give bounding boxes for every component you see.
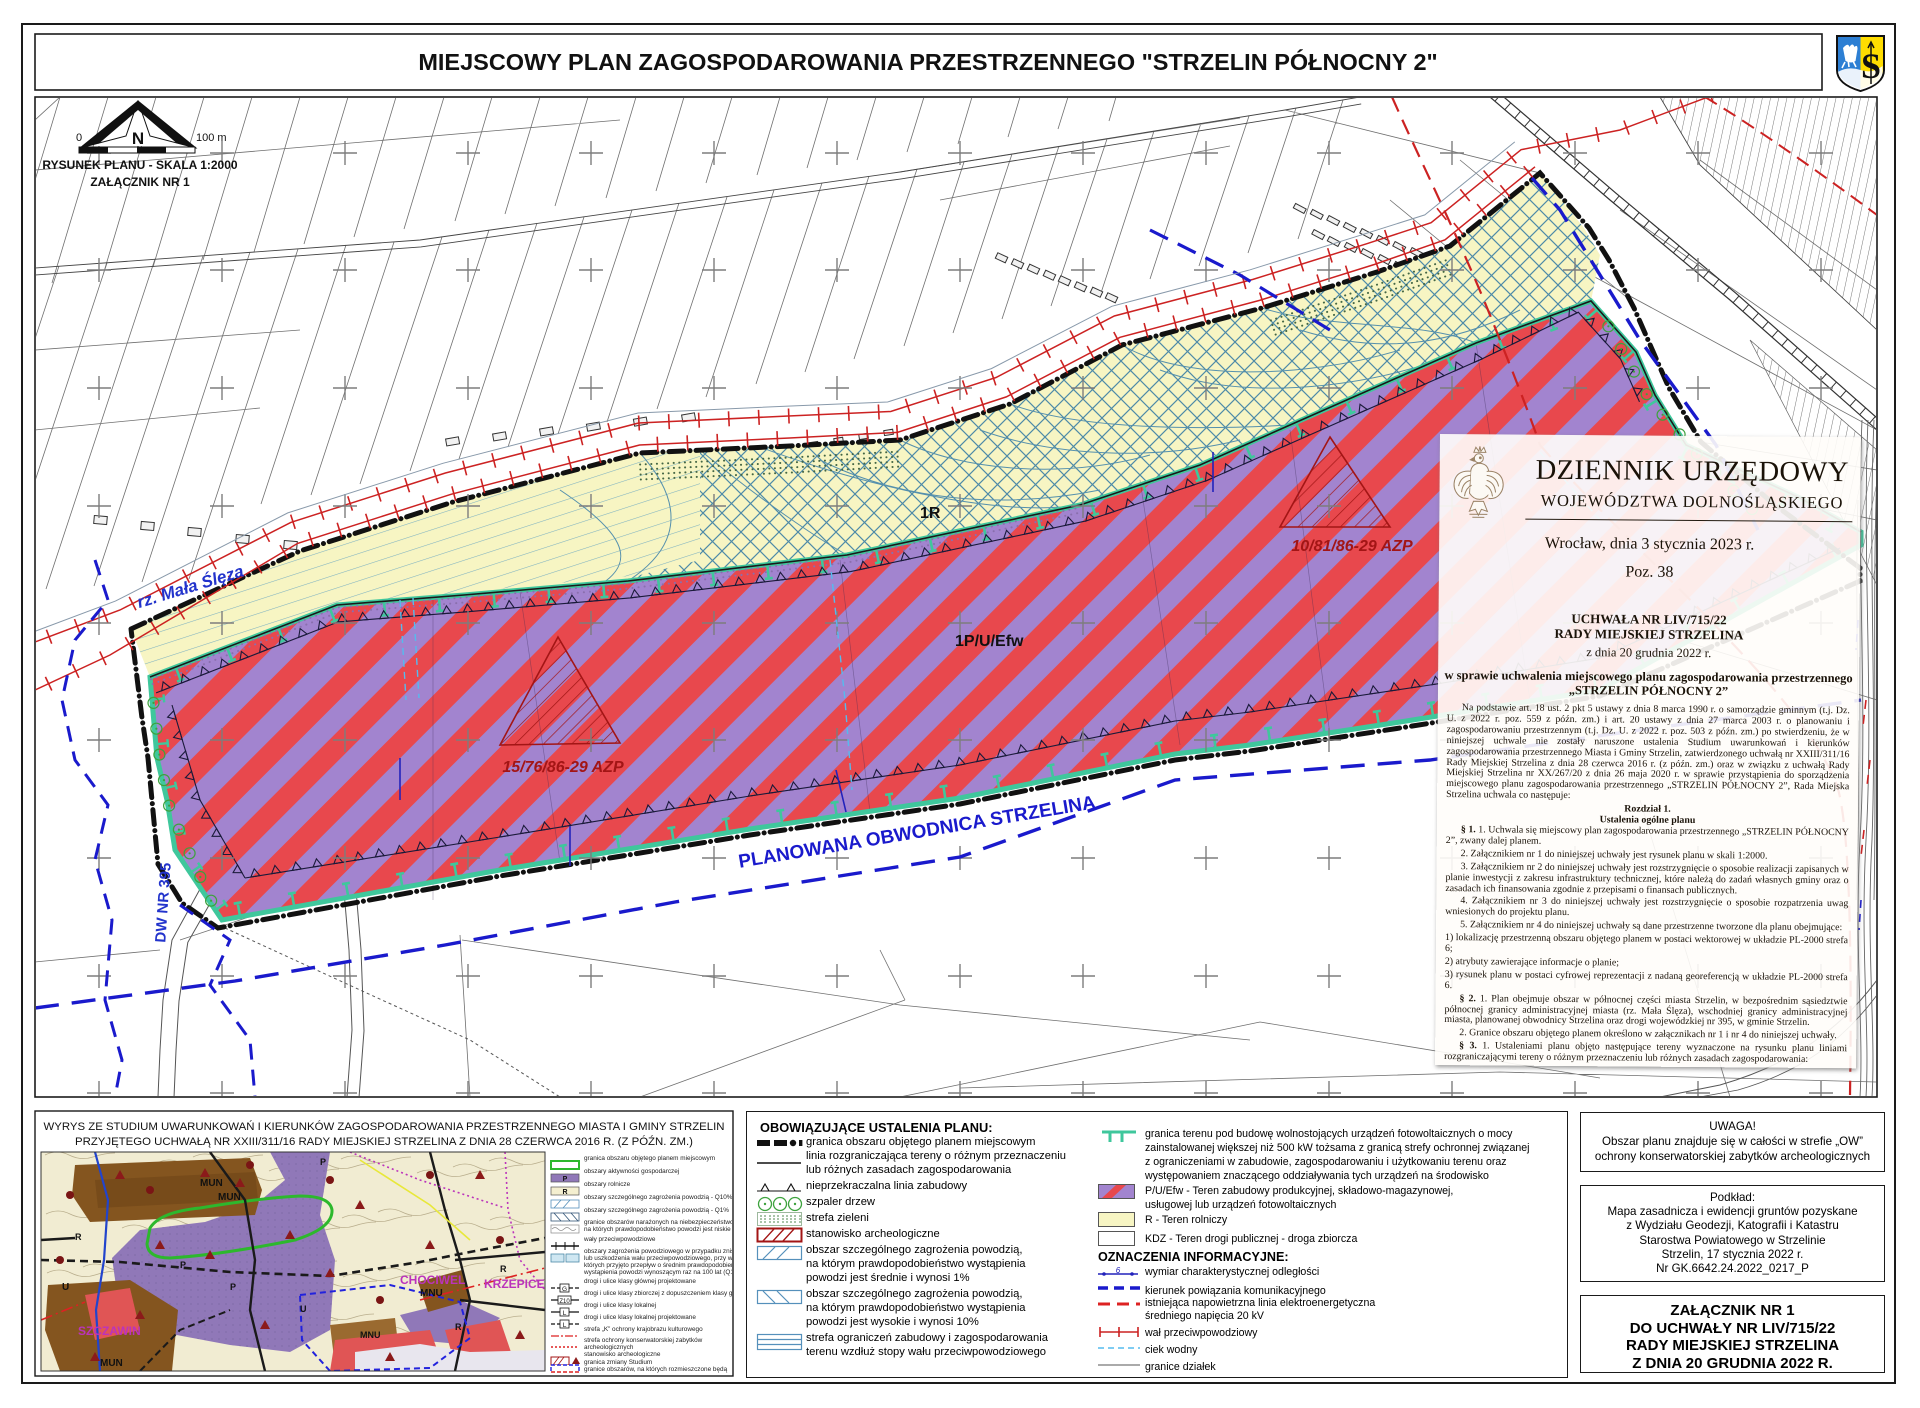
svg-text:R: R <box>455 1322 462 1332</box>
svg-text:P: P <box>320 1157 326 1167</box>
svg-text:R: R <box>500 1264 507 1274</box>
svg-text:MNU: MNU <box>360 1330 381 1340</box>
svg-text:PRZYJĘTEGO UCHWAŁĄ NR XXIII/31: PRZYJĘTEGO UCHWAŁĄ NR XXIII/311/16 RADY … <box>75 1135 693 1148</box>
svg-text:WYRYS ZE STUDIUM UWARUNKOWAŃ I: WYRYS ZE STUDIUM UWARUNKOWAŃ I KIERUNKÓW… <box>44 1120 725 1133</box>
svg-text:1P/U/Efw: 1P/U/Efw <box>955 633 1024 650</box>
svg-text:1R: 1R <box>920 505 941 522</box>
svg-text:U: U <box>300 1304 307 1314</box>
svg-text:R: R <box>562 1189 567 1196</box>
svg-text:MUN: MUN <box>218 1192 241 1203</box>
svg-text:U: U <box>62 1282 69 1293</box>
svg-text:KRZEPICE: KRZEPICE <box>484 1277 545 1291</box>
svg-text:MUN: MUN <box>100 1358 123 1369</box>
svg-text:SZCZAWIN: SZCZAWIN <box>78 1324 141 1338</box>
svg-text:15/76/86-29 AZP: 15/76/86-29 AZP <box>502 759 624 776</box>
svg-text:100 m: 100 m <box>196 132 227 144</box>
svg-text:MUN: MUN <box>200 1178 223 1189</box>
svg-text:6: 6 <box>1116 1266 1121 1275</box>
svg-text:0: 0 <box>76 132 82 144</box>
svg-text:P: P <box>230 1282 236 1292</box>
svg-text:MNU: MNU <box>420 1288 443 1299</box>
svg-text:CHOCIWEL: CHOCIWEL <box>400 1273 465 1287</box>
svg-text:N: N <box>132 129 144 148</box>
svg-text:R: R <box>75 1232 82 1242</box>
svg-text:RYSUNEK PLANU - SKALA 1:2000: RYSUNEK PLANU - SKALA 1:2000 <box>42 158 237 172</box>
svg-text:P: P <box>563 1176 568 1183</box>
svg-text:P: P <box>180 1260 186 1270</box>
svg-text:ZAŁĄCZNIK NR 1: ZAŁĄCZNIK NR 1 <box>90 175 190 189</box>
svg-text:MIEJSCOWY PLAN ZAGOSPODAROWANI: MIEJSCOWY PLAN ZAGOSPODAROWANIA PRZESTRZ… <box>418 48 1437 75</box>
svg-text:10/81/86-29 AZP: 10/81/86-29 AZP <box>1291 538 1413 555</box>
